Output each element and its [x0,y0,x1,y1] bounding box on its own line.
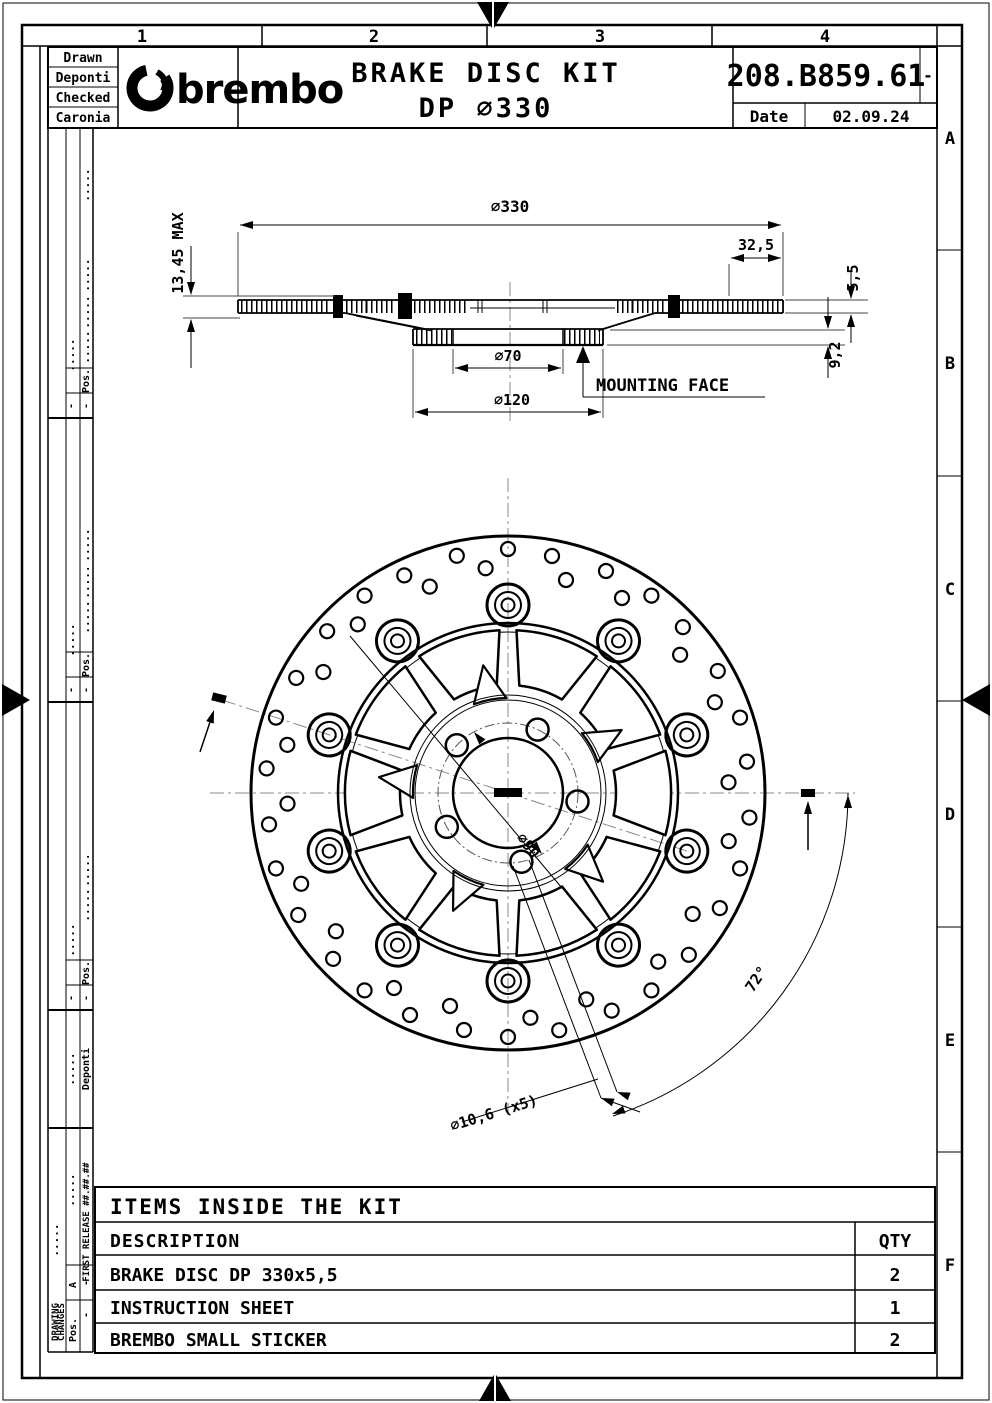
dim-max-thickness: 13,45 MAX [169,212,187,293]
date-label: Date [750,107,789,126]
zone-col-1: 1 [137,27,147,47]
drawing-title-line2: DP ∅330 [419,93,554,124]
items-table-title: ITEMS INSIDE THE KIT [110,1195,403,1219]
rev-dots: ..... [79,258,92,291]
dim-offset: 9,2 [826,341,844,368]
rev-dots: ..... [79,600,92,633]
rev-dots: ..... [79,330,92,363]
brembo-logo-mark [125,63,175,113]
rev-dash: - [66,403,77,409]
rev-dash: - [81,687,92,693]
pos-label-2: Pos. [81,653,92,677]
rev-dots: ..... [64,623,77,656]
item-description: INSTRUCTION SHEET [110,1298,294,1319]
item-qty: 1 [890,1298,901,1319]
part-number: 208.B859.61 [727,59,926,94]
rev-dots: ..... [64,1052,77,1085]
rev-dash: - [66,687,77,693]
pos-label-3: Pos. [81,961,92,985]
drawing-changes-line2: CHANGES [57,1303,67,1341]
date-value: 02.09.24 [832,107,909,126]
zone-row-b: B [945,354,955,374]
checked-label: Checked [56,91,111,106]
table-row: BRAKE DISC DP 330x5,5 2 [110,1265,900,1286]
zone-col-4: 4 [820,27,830,47]
center-mark [494,788,522,797]
qty-header: QTY [879,1231,912,1252]
checked-name: Caronia [56,111,111,126]
mounting-face-arrow [576,346,590,363]
rev-dots: ..... [79,853,92,886]
zone-col-2: 2 [369,27,379,47]
revision-letter: A [68,1282,79,1288]
mounting-face-label: MOUNTING FACE [596,376,729,396]
dim-band-width: 32,5 [738,236,774,254]
item-qty: 2 [890,1265,901,1286]
dim-disc-thickness: 5,5 [844,264,862,291]
brembo-logo-text: brembo [176,67,343,113]
zone-row-a: A [945,129,955,149]
engineering-drawing-sheet: 1 2 3 4 A B C D E F Drawn Deponti Checke… [0,0,992,1403]
rev-dots: ..... [64,923,77,956]
section-mark-right [801,789,815,850]
pos-label-1: Pos. [81,369,92,393]
description-header: DESCRIPTION [110,1231,240,1252]
rev-dots: ..... [79,295,92,328]
items-table: ITEMS INSIDE THE KIT DESCRIPTION QTY BRA… [95,1187,935,1353]
front-view: ∅90 ∅10,6 (x5) 72° [200,478,855,1135]
table-row: INSTRUCTION SHEET 1 [110,1298,900,1319]
zone-row-d: D [945,805,955,825]
rev-dots: ..... [79,168,92,201]
bobbin-section [398,293,412,319]
dim-bore: ∅70 [494,347,521,365]
revision-index: - [923,66,933,85]
revision-sidebar: DRAWING CHANGES Pos. A FIRST RELEASE ##.… [48,128,93,1352]
drawn-name: Deponti [56,71,111,86]
bobbin-section [668,295,680,318]
rev-dash: - [81,1280,92,1286]
rev-dash: - [81,995,92,1001]
item-description: BRAKE DISC DP 330x5,5 [110,1265,338,1286]
rev-dash: - [81,1312,92,1318]
rev-dots: ..... [79,528,92,561]
first-release-note: FIRST RELEASE ##.##.## [82,1162,92,1282]
rev-dots: ..... [64,338,77,371]
section-view: ∅330 32,5 13,45 MAX ∅70 ∅120 [169,197,868,425]
section-mark-left [200,692,227,752]
item-qty: 2 [890,1330,901,1351]
zone-col-3: 3 [595,27,605,47]
dim-bolt-holes: ∅10,6 (x5) [448,1091,540,1135]
dim-flange: ∅120 [494,391,530,409]
drawing-title-line1: BRAKE DISC KIT [351,58,621,89]
rev-dash: - [66,995,77,1001]
rev-dots: ..... [79,565,92,598]
table-row: BREMBO SMALL STICKER 2 [110,1330,900,1351]
zone-row-f: F [945,1256,955,1276]
rev-dots: ..... [79,888,92,921]
zone-row-c: C [945,580,955,600]
rev-dots: ..... [48,1223,61,1256]
rev-dots: ..... [64,1173,77,1206]
zone-row-e: E [945,1031,955,1051]
title-block: Drawn Deponti Checked Caronia brembo BRA… [48,47,937,128]
dim-outer-diameter: ∅330 [491,197,530,216]
pos-label-bottom: Pos. [68,1318,79,1342]
dim-hole-angle: 72° [741,963,771,996]
rev-dash: - [81,403,92,409]
bobbin-section [333,295,343,318]
item-description: BREMBO SMALL STICKER [110,1330,327,1351]
drawn-label: Drawn [63,51,102,66]
dim-bolt-circle: ∅90 [513,829,544,861]
brembo-logo: brembo [125,63,343,113]
mounting-hole [527,719,549,741]
author-signature: Deponti [80,1048,92,1090]
